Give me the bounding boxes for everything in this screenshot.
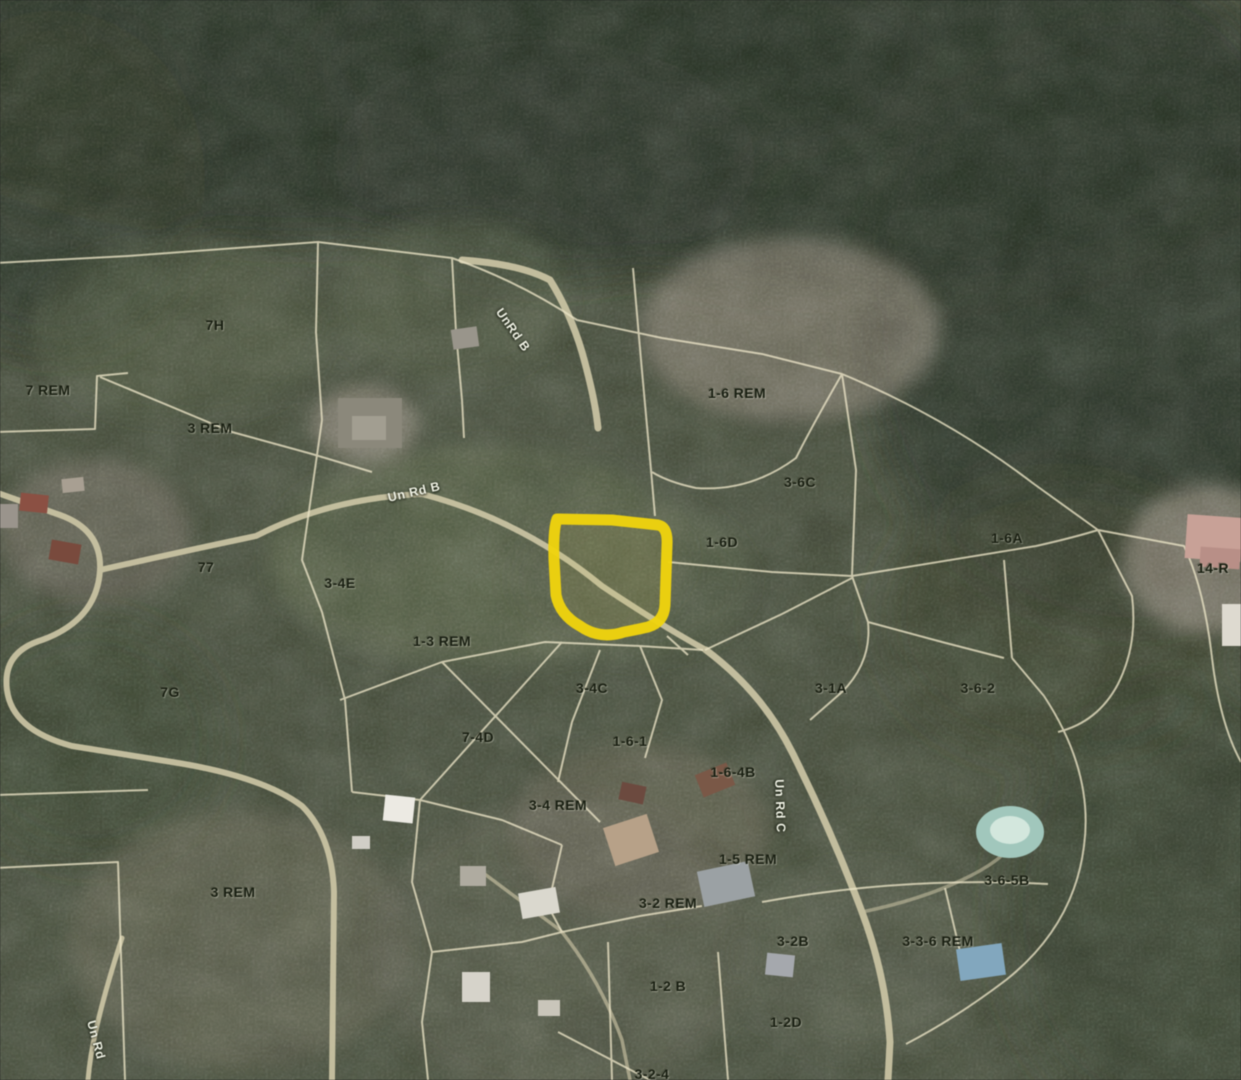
highlighted-parcel[interactable] (554, 519, 667, 635)
satellite-map-image (0, 0, 1241, 1080)
aerial-parcel-map[interactable]: 7H7 REM3 REM1-6 REM3-6C1-6D1-6A14-R773-4… (0, 0, 1241, 1080)
